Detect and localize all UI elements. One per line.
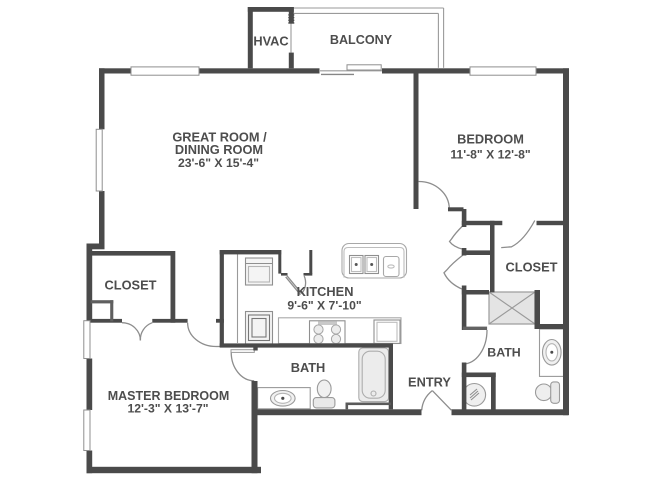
svg-text:9'-6" X 7'-10": 9'-6" X 7'-10" xyxy=(287,299,361,313)
svg-text:12'-3" X 13'-7": 12'-3" X 13'-7" xyxy=(127,401,208,415)
svg-text:CLOSET: CLOSET xyxy=(506,260,558,275)
svg-text:CLOSET: CLOSET xyxy=(105,278,157,293)
svg-text:BATH: BATH xyxy=(291,360,326,375)
svg-text:11'-8" X 12'-8": 11'-8" X 12'-8" xyxy=(450,148,530,162)
svg-text:BATH: BATH xyxy=(487,346,521,360)
svg-text:HVAC: HVAC xyxy=(253,34,288,49)
svg-text:23'-6" X 15'-4": 23'-6" X 15'-4" xyxy=(178,156,259,170)
svg-text:KITCHEN: KITCHEN xyxy=(297,284,354,299)
svg-text:BALCONY: BALCONY xyxy=(330,33,393,47)
svg-text:DINING ROOM: DINING ROOM xyxy=(175,142,263,157)
svg-text:ENTRY: ENTRY xyxy=(408,375,451,390)
svg-text:BEDROOM: BEDROOM xyxy=(457,132,524,147)
